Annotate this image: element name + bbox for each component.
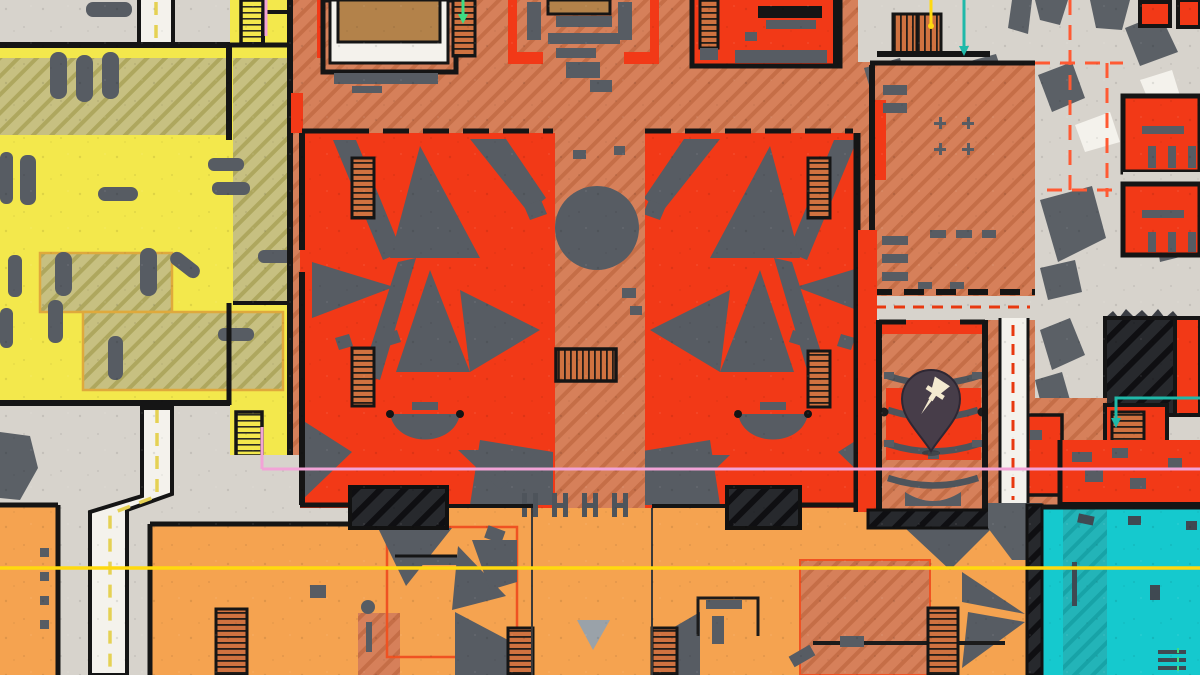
map-canvas[interactable]	[0, 0, 1200, 675]
grain-overlay	[0, 0, 1200, 675]
map-viewport[interactable]	[0, 0, 1200, 675]
